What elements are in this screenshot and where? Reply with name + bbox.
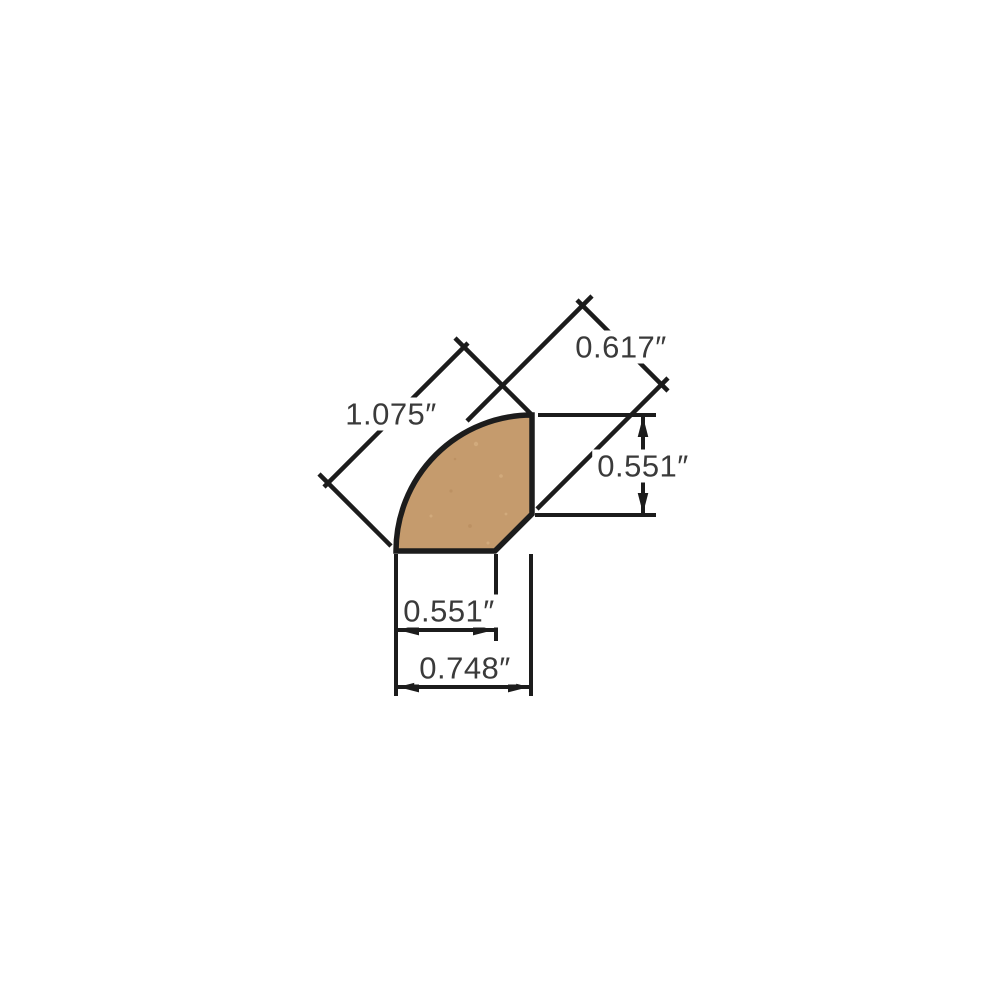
arrowhead-up [638, 417, 649, 438]
extension-line-chamfer [537, 378, 668, 509]
diagram-canvas [0, 0, 1000, 1000]
quarter-round-profile [396, 415, 532, 551]
dimension-label-bottom-outer-width: 0.748″ [414, 652, 516, 685]
arrowhead-down [638, 493, 649, 514]
dimension-label-bottom-inner-width: 0.551″ [398, 595, 500, 628]
dimension-label-diagonal-face-height: 0.617″ [570, 331, 672, 364]
speckle-dot [468, 524, 472, 528]
speckle-dot [487, 542, 490, 545]
speckle-dot [454, 458, 457, 461]
extension-line-diagonal-lower [319, 474, 391, 546]
speckle-dot [474, 442, 478, 446]
moulding-profile-diagram: 1.075″ 0.617″ 0.551″ 0.551″ 0.748″ [0, 0, 1000, 1000]
speckle-dot [430, 515, 433, 518]
speckle-dot [449, 489, 452, 492]
speckle-dot [499, 474, 503, 478]
speckle-dot [505, 513, 508, 516]
dimension-label-diagonal-length: 1.075″ [340, 398, 442, 431]
extension-line-diagonal-upper [455, 338, 532, 415]
dimension-label-right-side-height: 0.551″ [592, 450, 694, 483]
profile-shape-group [396, 415, 532, 551]
